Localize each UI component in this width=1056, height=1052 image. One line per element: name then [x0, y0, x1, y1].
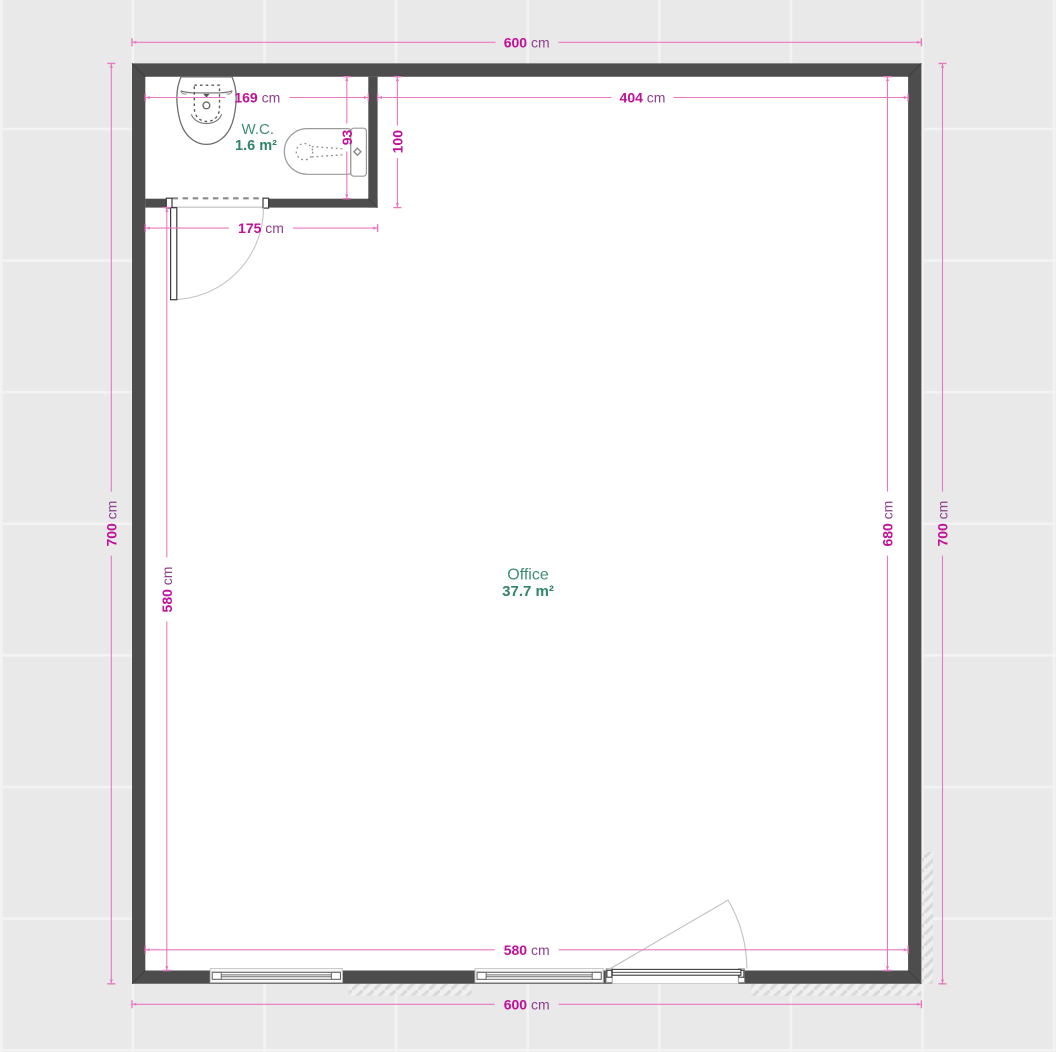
svg-text:404 cm: 404 cm — [620, 90, 666, 106]
svg-text:100: 100 — [390, 130, 406, 154]
svg-text:700 cm: 700 cm — [103, 501, 119, 547]
svg-text:680 cm: 680 cm — [880, 501, 896, 547]
svg-text:175 cm: 175 cm — [238, 220, 284, 236]
svg-text:1.6 m²: 1.6 m² — [235, 138, 277, 154]
svg-text:580 cm: 580 cm — [504, 942, 550, 958]
svg-text:600 cm: 600 cm — [504, 34, 550, 50]
svg-text:37.7 m²: 37.7 m² — [502, 583, 554, 600]
svg-text:Office: Office — [507, 567, 549, 584]
svg-text:W.C.: W.C. — [242, 121, 275, 138]
svg-text:600 cm: 600 cm — [504, 996, 550, 1012]
svg-text:93: 93 — [339, 130, 355, 146]
svg-text:580 cm: 580 cm — [159, 567, 175, 613]
svg-text:700 cm: 700 cm — [935, 501, 951, 547]
svg-text:169 cm: 169 cm — [234, 90, 280, 106]
